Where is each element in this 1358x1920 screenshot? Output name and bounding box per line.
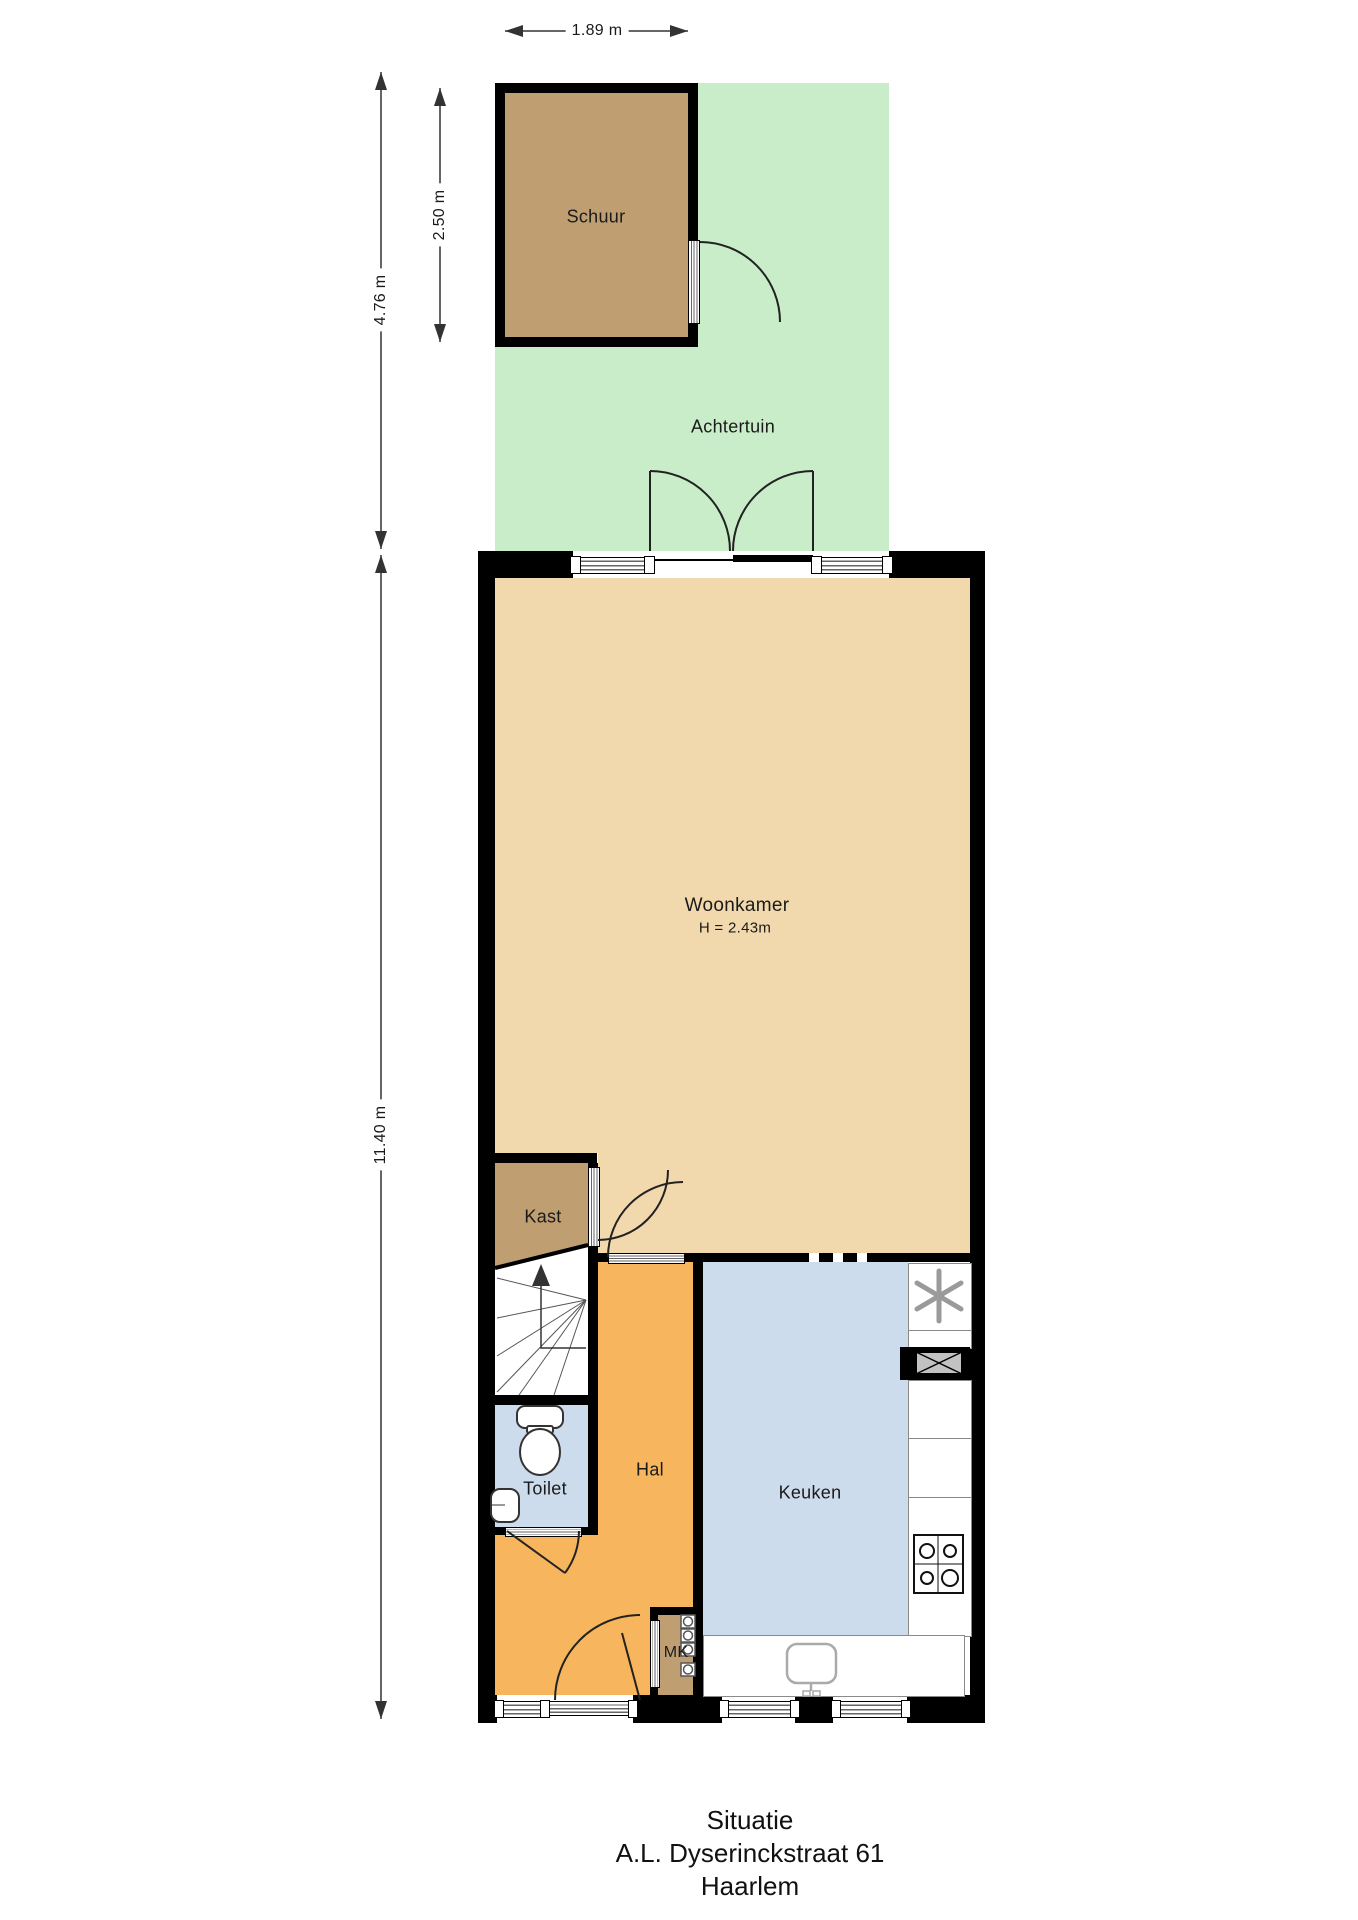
hand-basin-icon (491, 1489, 519, 1522)
stairs (495, 1245, 588, 1395)
shed-door-arc (700, 242, 780, 322)
toilet-door-arc (507, 1531, 579, 1573)
plan-linework (0, 0, 1358, 1920)
duct-shaft-icon (916, 1352, 962, 1374)
ventilation-fan-icon (917, 1271, 961, 1321)
dimension-label-house-depth: 11.40 m (372, 1100, 390, 1171)
title-city: Haarlem (616, 1870, 885, 1903)
meter-cabinet-label: MK (664, 1644, 689, 1662)
dimension-label-shed-depth: 2.50 m (431, 184, 449, 247)
floor-plan: Schuur Achtertuin Woonkamer H = 2.43m Ka… (0, 0, 1358, 1920)
shed-label: Schuur (567, 207, 626, 228)
closet-label: Kast (524, 1207, 561, 1228)
kitchen-label: Keuken (779, 1483, 842, 1504)
toilet-label: Toilet (523, 1479, 567, 1500)
living-room-label: Woonkamer (685, 895, 790, 917)
hall-label: Hal (636, 1460, 664, 1481)
kitchen-sink-icon (787, 1644, 836, 1696)
closet-door-arc (598, 1170, 668, 1240)
living-room-height-label: H = 2.43m (699, 920, 771, 937)
title-block: Situatie A.L. Dyserinckstraat 61 Haarlem (616, 1804, 885, 1903)
stairs-up-arrow-icon (532, 1264, 586, 1348)
dimension-label-shed-width: 1.89 m (566, 22, 629, 40)
dimension-label-garden-depth: 4.76 m (372, 269, 390, 332)
cooktop-icon (914, 1535, 963, 1593)
hall-living-door-arc (608, 1182, 683, 1257)
garden-label: Achtertuin (691, 417, 775, 438)
garden-double-doors (650, 471, 813, 551)
title-situatie: Situatie (616, 1804, 885, 1837)
toilet-icon (517, 1406, 563, 1475)
front-door-arc (555, 1615, 640, 1700)
title-address: A.L. Dyserinckstraat 61 (616, 1837, 885, 1870)
